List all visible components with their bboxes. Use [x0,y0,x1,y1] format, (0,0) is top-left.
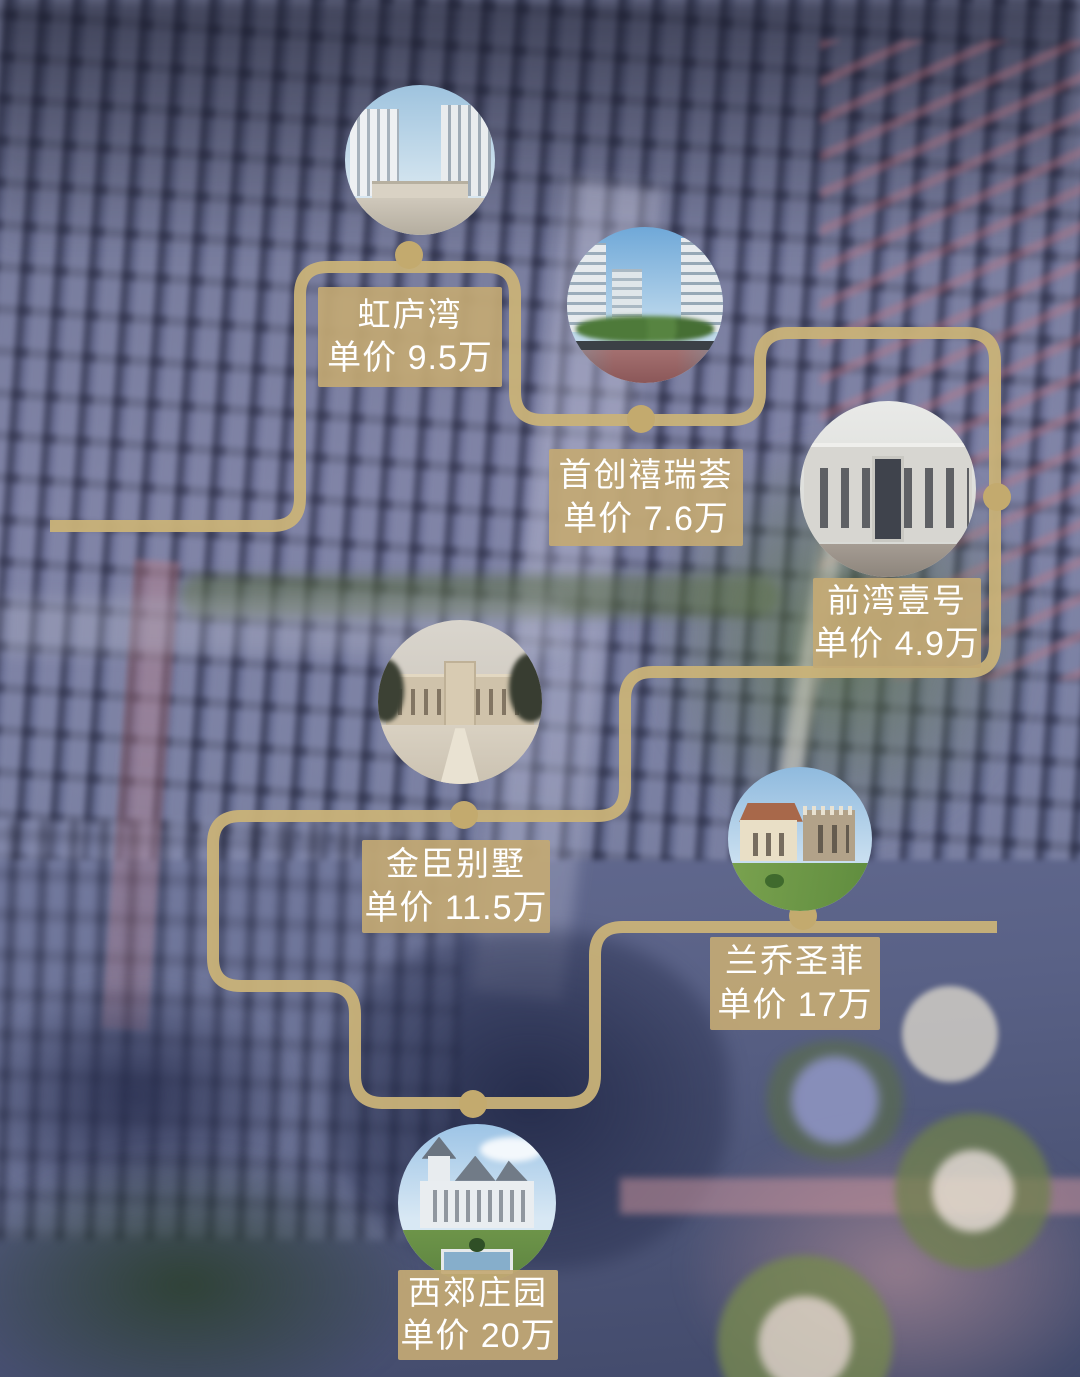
photo-topiary [469,1238,485,1252]
property-name: 首创禧瑞荟 [559,453,734,497]
property-photo-honglvwan [345,85,495,235]
property-price: 单价 9.5万 [327,336,493,381]
property-price: 单价 4.9万 [814,622,980,667]
property-photo-jinchen [378,620,542,784]
property-name: 虹庐湾 [358,293,463,337]
photo-pergola [803,806,855,815]
label-xijiao: 西郊庄园 单价 20万 [398,1270,558,1360]
route-node-qianwan [983,483,1011,511]
property-name: 金臣别墅 [386,842,526,886]
photo-windows [809,825,849,854]
photo-lawn [728,863,872,911]
photo-cloud [480,1137,543,1162]
photo-road [567,350,723,383]
route-node-xijiao [459,1090,487,1118]
photo-entrance [872,456,904,542]
property-photo-xijiao [398,1124,556,1282]
label-jinchen: 金臣别墅 单价 11.5万 [362,840,550,933]
photo-windows [426,1190,527,1222]
route-node-honglvwan [395,241,423,269]
photo-canopy [567,341,723,350]
property-name: 西郊庄园 [408,1271,548,1315]
photo-center-block [444,661,477,727]
photo-tree-right [509,653,542,722]
property-photo-qianwan [800,401,976,577]
label-qianwan: 前湾壹号 单价 4.9万 [813,578,981,668]
label-lanqiao: 兰乔圣菲 单价 17万 [710,937,880,1030]
label-xiruihui: 首创禧瑞荟 单价 7.6万 [549,449,743,546]
property-photo-xiruihui [567,227,723,383]
photo-ground [800,544,976,577]
route-node-xiruihui [627,405,655,433]
photo-trees [576,316,713,343]
property-price: 单价 11.5万 [364,886,547,931]
photo-bush [765,874,784,888]
property-price-map: 虹庐湾 单价 9.5万 首创禧瑞荟 单价 7.6万 前湾壹号 单价 4.9万 金… [0,0,1080,1377]
property-price: 单价 20万 [400,1314,555,1359]
property-name: 前湾壹号 [827,579,967,623]
photo-gate [372,181,468,199]
property-name: 兰乔圣菲 [725,939,865,983]
route-node-jinchen [450,801,478,829]
property-price: 单价 7.6万 [563,497,729,542]
label-honglvwan: 虹庐湾 单价 9.5万 [318,287,502,387]
property-photo-lanqiao [728,767,872,911]
photo-arched-windows [745,833,791,856]
property-price: 单价 17万 [717,983,872,1028]
photo-plaza [345,198,495,236]
